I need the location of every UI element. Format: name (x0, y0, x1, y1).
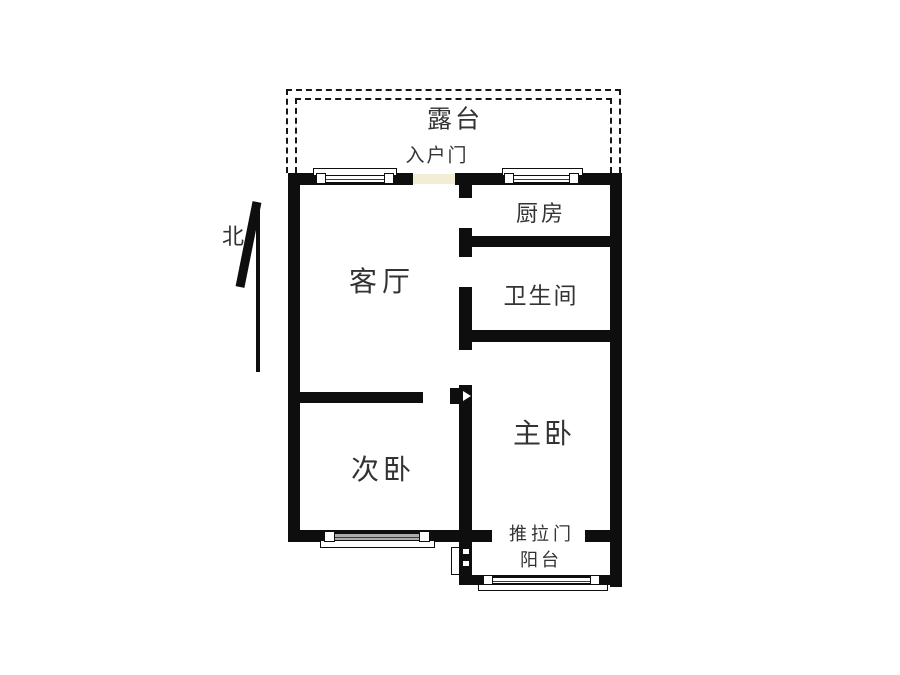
window-second-bedroom-cap-right (419, 531, 430, 542)
window-balcony-cap-right (590, 575, 600, 585)
room-label-balcony: 阳台 (520, 551, 562, 569)
room-label-living-room: 客厅 (349, 268, 415, 296)
wall-bottom-right-stub (585, 530, 622, 542)
wall-bathroom-bottom (459, 330, 610, 342)
window-second-bedroom-cap-left (324, 531, 335, 542)
window-living-room-cap-right (384, 173, 394, 184)
north-arrow-icon (210, 194, 270, 379)
room-label-terrace: 露台 (427, 108, 483, 133)
room-label-sliding-door: 推拉门 (509, 525, 575, 543)
wall-living-bedroom-divider (288, 392, 423, 403)
window-balcony-sill (478, 584, 608, 591)
door-arrow-icon (463, 391, 471, 401)
window-living-room-cap-left (316, 173, 326, 184)
window-kitchen-cap-left (504, 173, 514, 184)
wall-mid-stub-top (459, 185, 472, 198)
window-kitchen (507, 175, 577, 183)
window-balcony-side-cap-top (462, 548, 470, 555)
wall-left (288, 173, 300, 542)
window-balcony-side-cap-bottom (462, 560, 470, 567)
window-kitchen-cap-right (569, 173, 579, 184)
window-balcony (486, 577, 592, 584)
north-label: 北 (222, 226, 244, 248)
wall-right (610, 173, 622, 587)
room-label-master-bedroom: 主卧 (513, 420, 575, 448)
wall-kitchen-divider (459, 236, 610, 247)
window-second-bedroom (327, 533, 430, 541)
room-label-second-bedroom: 次卧 (351, 456, 415, 484)
window-balcony-side-sill (451, 547, 460, 575)
window-living-room (320, 175, 390, 183)
room-label-kitchen: 厨房 (516, 203, 566, 225)
room-label-bathroom: 卫生间 (504, 285, 579, 308)
wall-mid-bedrooms (459, 385, 472, 585)
entrance-door-opening (413, 174, 455, 184)
door-marker-icon (450, 388, 472, 404)
room-label-entrance-door: 入户门 (405, 147, 468, 166)
window-balcony-cap-left (483, 575, 493, 585)
window-second-bedroom-sill (320, 540, 435, 548)
floor-plan: 北 露台 入户门 厨房 客厅 卫生间 主卧 次卧 推拉门 阳台 (0, 0, 900, 675)
